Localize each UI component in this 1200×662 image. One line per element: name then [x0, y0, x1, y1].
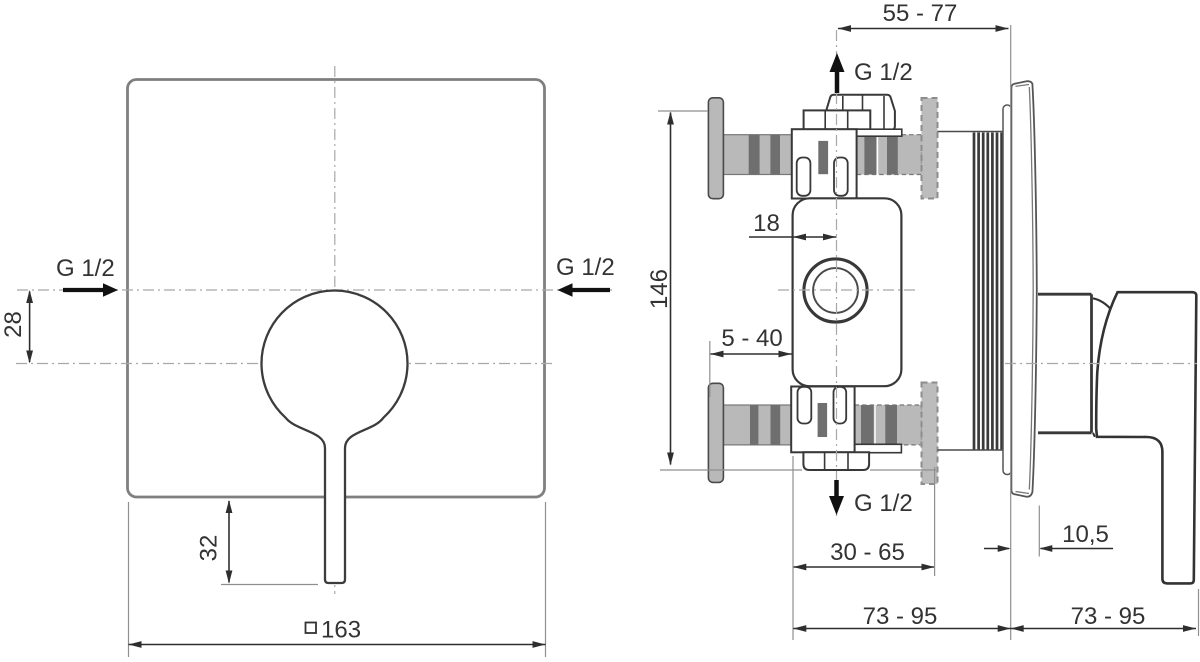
svg-text:73 - 95: 73 - 95 [863, 603, 938, 630]
svg-text:73 - 95: 73 - 95 [1071, 603, 1146, 630]
svg-text:146: 146 [646, 269, 673, 309]
svg-text:G 1/2: G 1/2 [854, 490, 913, 517]
svg-text:G 1/2: G 1/2 [556, 254, 615, 281]
svg-text:55 - 77: 55 - 77 [883, 0, 958, 27]
svg-text:18: 18 [753, 210, 780, 237]
svg-text:G 1/2: G 1/2 [854, 59, 913, 86]
svg-text:G 1/2: G 1/2 [56, 255, 115, 282]
svg-text:30 - 65: 30 - 65 [830, 539, 905, 566]
svg-text:10,5: 10,5 [1062, 521, 1109, 548]
svg-text:28: 28 [0, 311, 27, 338]
svg-text:163: 163 [321, 617, 361, 644]
svg-text:32: 32 [196, 535, 223, 562]
svg-text:5 - 40: 5 - 40 [721, 325, 782, 352]
